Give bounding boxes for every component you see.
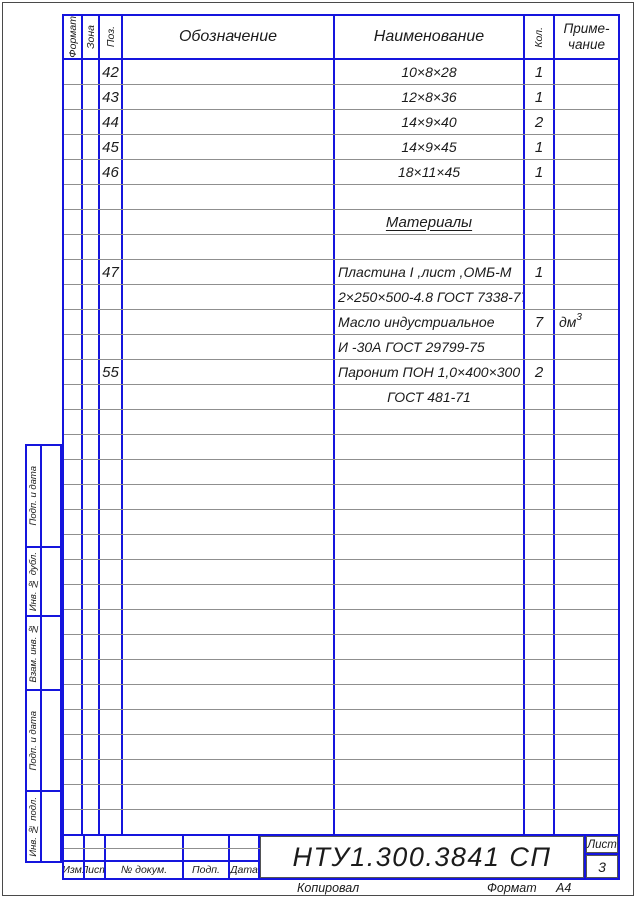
cell-format <box>64 360 83 384</box>
cell-format <box>64 685 83 709</box>
cell-qty <box>525 660 555 684</box>
spec-table-body: 4210×8×2814312×8×3614414×9×4024514×9×451… <box>64 60 618 834</box>
sidebar-box-sign-date-2: Подп. и дата <box>25 689 62 792</box>
cell-format <box>64 785 83 809</box>
spec-table-header: Формат Зона Поз. Обозначение Наименовани… <box>64 16 618 60</box>
revision-row-empty-2 <box>64 849 260 862</box>
cell-qty <box>525 510 555 534</box>
cell-note <box>555 535 618 559</box>
cell-note <box>555 335 618 359</box>
cell-zone <box>83 235 100 259</box>
cell-qty <box>525 635 555 659</box>
cell-qty <box>525 210 555 234</box>
cell-qty <box>525 335 555 359</box>
cell-format <box>64 110 83 134</box>
column-header-qty: Кол. <box>525 16 555 58</box>
cell-format <box>64 410 83 434</box>
cell-zone <box>83 760 100 784</box>
cell-zone <box>83 710 100 734</box>
cell-designation <box>123 410 335 434</box>
cell-position: 46 <box>100 160 123 184</box>
cell-zone <box>83 135 100 159</box>
sidebar-label-cell: Взам. инв. № <box>27 617 42 689</box>
cell-zone <box>83 285 100 309</box>
cell-designation <box>123 735 335 759</box>
spec-row <box>64 410 618 435</box>
spec-row <box>64 460 618 485</box>
sidebar-label-text: Инв. № дубл. <box>28 552 39 611</box>
cell-name: ГОСТ 481-71 <box>335 385 525 409</box>
cell-zone <box>83 435 100 459</box>
sidebar-box-inv-orig: Инв. № подл. <box>25 790 62 863</box>
cell-name: Материалы <box>335 210 525 234</box>
cell-designation <box>123 60 335 84</box>
cell-note <box>555 560 618 584</box>
cell-name <box>335 560 525 584</box>
cell-note <box>555 710 618 734</box>
cell-qty: 1 <box>525 160 555 184</box>
cell-note <box>555 610 618 634</box>
cell-name <box>335 785 525 809</box>
sidebar-label-text: Подп. и дата <box>28 711 39 770</box>
title-block-revision-grid: Изм. Лист № докум. Подп. Дата <box>64 836 260 878</box>
cell-format <box>64 85 83 109</box>
cell-designation <box>123 510 335 534</box>
cell-name <box>335 685 525 709</box>
sidebar-empty-cell <box>42 617 60 689</box>
cell-designation <box>123 610 335 634</box>
cell-designation <box>123 260 335 284</box>
cell-zone <box>83 335 100 359</box>
cell-zone <box>83 485 100 509</box>
cell-name <box>335 610 525 634</box>
cell-designation <box>123 185 335 209</box>
cell-designation <box>123 360 335 384</box>
cell-note <box>555 85 618 109</box>
cell-format <box>64 235 83 259</box>
cell-qty: 1 <box>525 85 555 109</box>
spec-row: 4618×11×451 <box>64 160 618 185</box>
cell-position <box>100 185 123 209</box>
cell-qty <box>525 435 555 459</box>
cell-note <box>555 110 618 134</box>
cell-position: 42 <box>100 60 123 84</box>
cell-position <box>100 510 123 534</box>
sidebar-label-cell: Подп. и дата <box>27 446 42 546</box>
cell-name <box>335 760 525 784</box>
spec-row <box>64 810 618 834</box>
cell-note <box>555 435 618 459</box>
cell-qty <box>525 585 555 609</box>
cell-designation <box>123 585 335 609</box>
cell-name <box>335 410 525 434</box>
cell-note <box>555 135 618 159</box>
cell-note <box>555 785 618 809</box>
cell-name: 14×9×45 <box>335 135 525 159</box>
cell-format <box>64 285 83 309</box>
column-header-zone: Зона <box>83 16 100 58</box>
cell-format <box>64 485 83 509</box>
column-header-position: Поз. <box>100 16 123 58</box>
cell-designation <box>123 710 335 734</box>
cell-designation <box>123 685 335 709</box>
column-header-designation: Обозначение <box>123 16 335 58</box>
cell-position <box>100 210 123 234</box>
cell-name <box>335 510 525 534</box>
cell-position <box>100 485 123 509</box>
cell-note <box>555 735 618 759</box>
cell-note <box>555 635 618 659</box>
cell-name <box>335 660 525 684</box>
spec-row: 4514×9×451 <box>64 135 618 160</box>
spec-row <box>64 235 618 260</box>
label-doc-number: № докум. <box>106 862 184 878</box>
cell-name <box>335 810 525 834</box>
cell-designation <box>123 460 335 484</box>
sidebar-label-cell: Инв. № подл. <box>27 792 42 861</box>
cell-designation <box>123 810 335 834</box>
cell-designation <box>123 335 335 359</box>
spec-row <box>64 660 618 685</box>
cell-note <box>555 360 618 384</box>
cell-name: 12×8×36 <box>335 85 525 109</box>
cell-position <box>100 585 123 609</box>
cell-position <box>100 760 123 784</box>
cell-zone <box>83 510 100 534</box>
sidebar-empty-cell <box>42 792 60 861</box>
cell-format <box>64 560 83 584</box>
cell-format <box>64 635 83 659</box>
cell-format <box>64 535 83 559</box>
spec-row: Материалы <box>64 210 618 235</box>
spec-row: 55Паронит ПОН 1,0×400×3002 <box>64 360 618 385</box>
cell-zone <box>83 735 100 759</box>
cell-name <box>335 535 525 559</box>
cell-qty: 1 <box>525 135 555 159</box>
cell-position <box>100 235 123 259</box>
footer-format-label: Формат <box>487 881 537 895</box>
spec-row <box>64 710 618 735</box>
label-signature: Подп. <box>184 862 230 878</box>
cell-designation <box>123 660 335 684</box>
cell-designation <box>123 210 335 234</box>
cell-format <box>64 160 83 184</box>
revision-row-labels: Изм. Лист № докум. Подп. Дата <box>64 862 260 878</box>
spec-row: ГОСТ 481-71 <box>64 385 618 410</box>
cell-designation <box>123 85 335 109</box>
cell-note <box>555 810 618 834</box>
cell-qty <box>525 185 555 209</box>
cell-name: Масло индустриальное <box>335 310 525 334</box>
column-header-note: Приме- чание <box>555 16 618 58</box>
cell-designation <box>123 785 335 809</box>
cell-zone <box>83 585 100 609</box>
cell-note <box>555 160 618 184</box>
cell-qty <box>525 610 555 634</box>
sidebar-label-cell: Инв. № дубл. <box>27 548 42 615</box>
cell-zone <box>83 460 100 484</box>
cell-designation <box>123 135 335 159</box>
cell-qty <box>525 385 555 409</box>
cell-zone <box>83 810 100 834</box>
sidebar-label-text: Инв. № подл. <box>28 797 39 857</box>
column-header-format: Формат <box>64 16 83 58</box>
sheet-label: Лист <box>586 836 618 855</box>
label-date: Дата <box>230 862 260 878</box>
cell-note: дм3 <box>555 310 618 334</box>
cell-position <box>100 385 123 409</box>
cell-name <box>335 185 525 209</box>
cell-qty: 2 <box>525 110 555 134</box>
spec-row: Масло индустриальное7дм3 <box>64 310 618 335</box>
cell-designation <box>123 535 335 559</box>
cell-note <box>555 210 618 234</box>
spec-row <box>64 560 618 585</box>
cell-designation <box>123 435 335 459</box>
sidebar-label-text: Подп. и дата <box>28 466 39 525</box>
cell-position <box>100 710 123 734</box>
cell-format <box>64 810 83 834</box>
cell-name: И -30А ГОСТ 29799-75 <box>335 335 525 359</box>
spec-row <box>64 185 618 210</box>
cell-note <box>555 585 618 609</box>
sidebar-box-replace-inv: Взам. инв. № <box>25 615 62 691</box>
spec-row <box>64 635 618 660</box>
sidebar-box-inv-dupl: Инв. № дубл. <box>25 546 62 617</box>
cell-position <box>100 535 123 559</box>
cell-format <box>64 660 83 684</box>
cell-format <box>64 435 83 459</box>
cell-format <box>64 585 83 609</box>
cell-note <box>555 410 618 434</box>
cell-zone <box>83 385 100 409</box>
cell-qty <box>525 810 555 834</box>
cell-qty <box>525 535 555 559</box>
cell-zone <box>83 85 100 109</box>
cell-position <box>100 735 123 759</box>
cell-zone <box>83 360 100 384</box>
cell-designation <box>123 310 335 334</box>
cell-note <box>555 185 618 209</box>
cell-name <box>335 460 525 484</box>
cell-zone <box>83 610 100 634</box>
footer-format-value: А4 <box>556 881 571 895</box>
cell-name: Паронит ПОН 1,0×400×300 <box>335 360 525 384</box>
spec-row <box>64 535 618 560</box>
cell-name <box>335 710 525 734</box>
sidebar-empty-cell <box>42 548 60 615</box>
cell-qty <box>525 760 555 784</box>
cell-position <box>100 785 123 809</box>
cell-qty <box>525 785 555 809</box>
cell-name: 10×8×28 <box>335 60 525 84</box>
cell-name <box>335 585 525 609</box>
cell-format <box>64 335 83 359</box>
spec-row <box>64 510 618 535</box>
cell-qty: 2 <box>525 360 555 384</box>
cell-format <box>64 185 83 209</box>
cell-name: 2×250×500-4.8 ГОСТ 7338-77 <box>335 285 525 309</box>
cell-designation <box>123 285 335 309</box>
cell-format <box>64 510 83 534</box>
cell-position <box>100 660 123 684</box>
cell-format <box>64 460 83 484</box>
cell-zone <box>83 185 100 209</box>
cell-position <box>100 685 123 709</box>
spec-row: И -30А ГОСТ 29799-75 <box>64 335 618 360</box>
cell-name <box>335 635 525 659</box>
sidebar-box-sign-date-1: Подп. и дата <box>25 444 62 548</box>
spec-row: 4312×8×361 <box>64 85 618 110</box>
cell-note <box>555 60 618 84</box>
title-block: Изм. Лист № докум. Подп. Дата НТУ1.300.3… <box>64 834 618 878</box>
document-number: НТУ1.300.3841 СП <box>260 836 586 878</box>
cell-note <box>555 285 618 309</box>
cell-zone <box>83 785 100 809</box>
cell-qty <box>525 710 555 734</box>
label-izm: Изм. <box>64 862 85 878</box>
cell-designation <box>123 110 335 134</box>
spec-row <box>64 685 618 710</box>
cell-position <box>100 435 123 459</box>
cell-designation <box>123 560 335 584</box>
spec-row <box>64 610 618 635</box>
cell-position: 55 <box>100 360 123 384</box>
spec-row: 4414×9×402 <box>64 110 618 135</box>
sidebar-label-text: Взам. инв. № <box>28 623 39 682</box>
cell-designation <box>123 485 335 509</box>
cell-qty <box>525 485 555 509</box>
cell-position: 43 <box>100 85 123 109</box>
spec-table: Формат Зона Поз. Обозначение Наименовани… <box>62 14 620 880</box>
cell-name <box>335 735 525 759</box>
cell-position: 47 <box>100 260 123 284</box>
cell-note <box>555 385 618 409</box>
cell-qty <box>525 460 555 484</box>
cell-designation <box>123 635 335 659</box>
cell-qty: 7 <box>525 310 555 334</box>
sidebar-empty-cell <box>42 446 60 546</box>
cell-format <box>64 310 83 334</box>
cell-note <box>555 510 618 534</box>
cell-qty: 1 <box>525 60 555 84</box>
cell-format <box>64 260 83 284</box>
footer-copied-by: Копировал <box>297 881 359 895</box>
cell-format <box>64 60 83 84</box>
cell-zone <box>83 110 100 134</box>
sheet-number: 3 <box>586 855 618 878</box>
cell-qty <box>525 410 555 434</box>
sidebar-label-cell: Подп. и дата <box>27 691 42 790</box>
cell-note <box>555 460 618 484</box>
cell-zone <box>83 210 100 234</box>
spec-row <box>64 435 618 460</box>
cell-note <box>555 485 618 509</box>
cell-position: 45 <box>100 135 123 159</box>
cell-designation <box>123 385 335 409</box>
cell-name <box>335 435 525 459</box>
cell-zone <box>83 560 100 584</box>
cell-name <box>335 485 525 509</box>
cell-position <box>100 560 123 584</box>
cell-zone <box>83 535 100 559</box>
spec-row <box>64 585 618 610</box>
cell-position <box>100 460 123 484</box>
cell-zone <box>83 685 100 709</box>
cell-format <box>64 385 83 409</box>
cell-zone <box>83 160 100 184</box>
cell-position <box>100 335 123 359</box>
spec-row <box>64 735 618 760</box>
cell-note <box>555 235 618 259</box>
cell-format <box>64 610 83 634</box>
cell-qty: 1 <box>525 260 555 284</box>
cell-position <box>100 285 123 309</box>
cell-name: 18×11×45 <box>335 160 525 184</box>
cell-qty <box>525 235 555 259</box>
cell-qty <box>525 560 555 584</box>
cell-note <box>555 660 618 684</box>
cell-format <box>64 135 83 159</box>
label-list: Лист <box>85 862 106 878</box>
cell-position <box>100 310 123 334</box>
cell-qty <box>525 685 555 709</box>
cell-position <box>100 635 123 659</box>
cell-designation <box>123 760 335 784</box>
cell-note <box>555 260 618 284</box>
cell-format <box>64 760 83 784</box>
cell-zone <box>83 660 100 684</box>
revision-row-empty-1 <box>64 836 260 849</box>
cell-qty <box>525 285 555 309</box>
cell-position <box>100 410 123 434</box>
cell-format <box>64 710 83 734</box>
cell-designation <box>123 160 335 184</box>
cell-position <box>100 610 123 634</box>
cell-zone <box>83 310 100 334</box>
column-header-name: Наименование <box>335 16 525 58</box>
cell-format <box>64 210 83 234</box>
cell-note <box>555 685 618 709</box>
cell-position: 44 <box>100 110 123 134</box>
spec-row: 4210×8×281 <box>64 60 618 85</box>
cell-name <box>335 235 525 259</box>
cell-designation <box>123 235 335 259</box>
spec-row <box>64 785 618 810</box>
sidebar-empty-cell <box>42 691 60 790</box>
spec-row <box>64 485 618 510</box>
spec-row: 2×250×500-4.8 ГОСТ 7338-77 <box>64 285 618 310</box>
spec-row <box>64 760 618 785</box>
page: { "colors": { "frame_blue": "#1515dd", "… <box>0 0 636 898</box>
cell-zone <box>83 60 100 84</box>
cell-qty <box>525 735 555 759</box>
cell-note <box>555 760 618 784</box>
cell-zone <box>83 260 100 284</box>
cell-position <box>100 810 123 834</box>
cell-name: Пластина I ,лист ,ОМБ-М <box>335 260 525 284</box>
cell-name: 14×9×40 <box>335 110 525 134</box>
spec-row: 47Пластина I ,лист ,ОМБ-М1 <box>64 260 618 285</box>
cell-format <box>64 735 83 759</box>
cell-zone <box>83 410 100 434</box>
cell-zone <box>83 635 100 659</box>
sheet-cell: Лист 3 <box>586 836 618 878</box>
